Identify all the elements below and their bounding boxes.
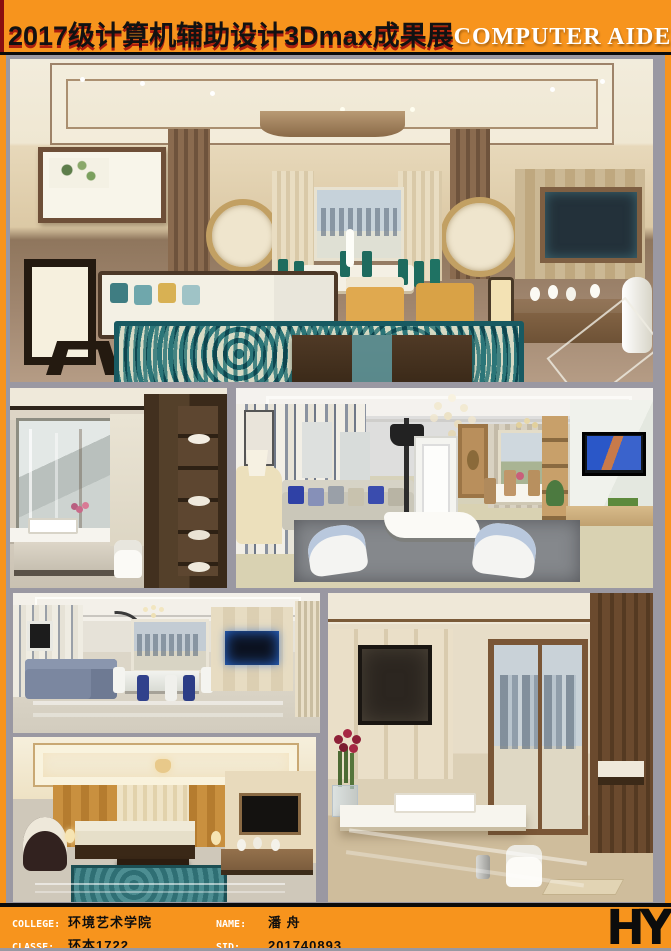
render-chinese-living-room <box>13 737 316 902</box>
triangle-coffee-table <box>384 512 480 538</box>
grass-planter <box>608 498 638 506</box>
city-skyline <box>137 634 201 656</box>
wall-strip <box>110 414 144 546</box>
city-window <box>131 619 209 673</box>
city-skyline <box>321 208 397 236</box>
bath-mat <box>542 879 625 895</box>
towel-shelf <box>598 761 644 785</box>
moon-circle-right <box>440 197 520 277</box>
mirror-reflections <box>29 429 32 529</box>
counter-flowers <box>76 506 83 513</box>
buddha-statue <box>467 450 479 470</box>
rolled-towels <box>188 434 210 444</box>
fluted-column <box>295 601 320 717</box>
city-window <box>314 187 404 261</box>
roundback-chair <box>23 817 67 871</box>
poster-title-chinese: 2017级计算机辅助设计3Dmax成果展 <box>8 23 454 50</box>
blue-sofa <box>25 659 117 699</box>
left-wood-column <box>168 129 210 279</box>
steel-bin <box>476 855 490 879</box>
dining-chandelier <box>524 418 530 424</box>
wood-wardrobe <box>144 394 227 588</box>
tv-screen <box>540 187 642 263</box>
flower-stems <box>338 751 342 787</box>
tv-screen <box>225 631 279 665</box>
right-frame-strip <box>665 55 671 903</box>
branch-vase <box>346 229 354 267</box>
dining-chairs <box>113 667 125 693</box>
ceiling-downlights <box>80 77 85 82</box>
dark-mirror <box>358 645 432 725</box>
table-flowers <box>516 472 524 480</box>
render-modern-living-dining <box>13 593 320 733</box>
tv-screen <box>582 432 646 476</box>
render-bathroom-vanity <box>10 388 227 588</box>
sofa-cushions <box>288 486 304 504</box>
vessel-basin <box>28 518 78 534</box>
poster-page: 2017级计算机辅助设计3Dmax成果展 COMPUTER AIDED DESI… <box>0 0 671 951</box>
name-label: NAME: <box>216 919 250 930</box>
table-lamp <box>246 450 268 476</box>
console-vases <box>237 839 246 851</box>
tv-screen <box>239 793 301 835</box>
moon-circle-left <box>206 199 280 273</box>
framed-art <box>27 621 53 651</box>
hy-logo: HY <box>606 904 668 950</box>
wood-slat-wall <box>590 593 653 853</box>
curvy-side-table <box>236 466 282 544</box>
left-frame-strip <box>0 55 6 903</box>
college-label: COLLEGE: <box>12 919 50 930</box>
painting-foliage <box>49 158 109 188</box>
rect-basin <box>394 793 476 813</box>
name-value: 潘 舟 <box>268 912 388 931</box>
white-vases <box>530 287 540 301</box>
coffee-table <box>292 335 472 382</box>
footer-bar: COLLEGE: 环境艺术学院 NAME: 潘 舟 CLASSE: 环本1722… <box>0 907 671 951</box>
table-runner <box>352 335 392 382</box>
floor-sheen <box>33 701 283 705</box>
dining-chairs-wood <box>484 478 496 504</box>
door-divider <box>538 645 542 829</box>
wardrobe-shelves <box>178 406 218 576</box>
render-neochinese-living-room <box>10 59 653 382</box>
wood-sofa <box>75 821 195 859</box>
potted-plant <box>546 480 564 506</box>
college-value: 环境艺术学院 <box>68 912 198 931</box>
tv-wall-beige <box>211 607 293 691</box>
crystal-chandelier <box>448 394 456 402</box>
table-lamps <box>65 829 75 843</box>
poster-title-english: COMPUTER AIDED DESIGN <box>454 25 671 50</box>
chandelier <box>155 759 171 773</box>
tv-picture <box>587 436 641 470</box>
tv-console <box>221 849 313 875</box>
render-bathroom-cityview <box>328 593 653 902</box>
header-red-edge <box>0 0 4 52</box>
toilet <box>114 540 142 578</box>
red-roses <box>334 735 343 744</box>
sofa-cushions <box>110 283 128 303</box>
wall-painting <box>38 147 166 223</box>
render-living-room-chandelier <box>236 388 653 588</box>
footer-info-grid: COLLEGE: 环境艺术学院 NAME: 潘 舟 CLASSE: 环本1722… <box>12 912 388 951</box>
dining-ceiling-feature <box>260 111 405 137</box>
vanity-cabinet <box>14 542 118 576</box>
header-bar: 2017级计算机辅助设计3Dmax成果展 COMPUTER AIDED DESI… <box>0 0 671 55</box>
floor-inlay-line <box>35 883 285 885</box>
mini-chandelier <box>151 605 156 610</box>
dining-table-white <box>494 484 548 502</box>
dining-table <box>125 671 199 691</box>
